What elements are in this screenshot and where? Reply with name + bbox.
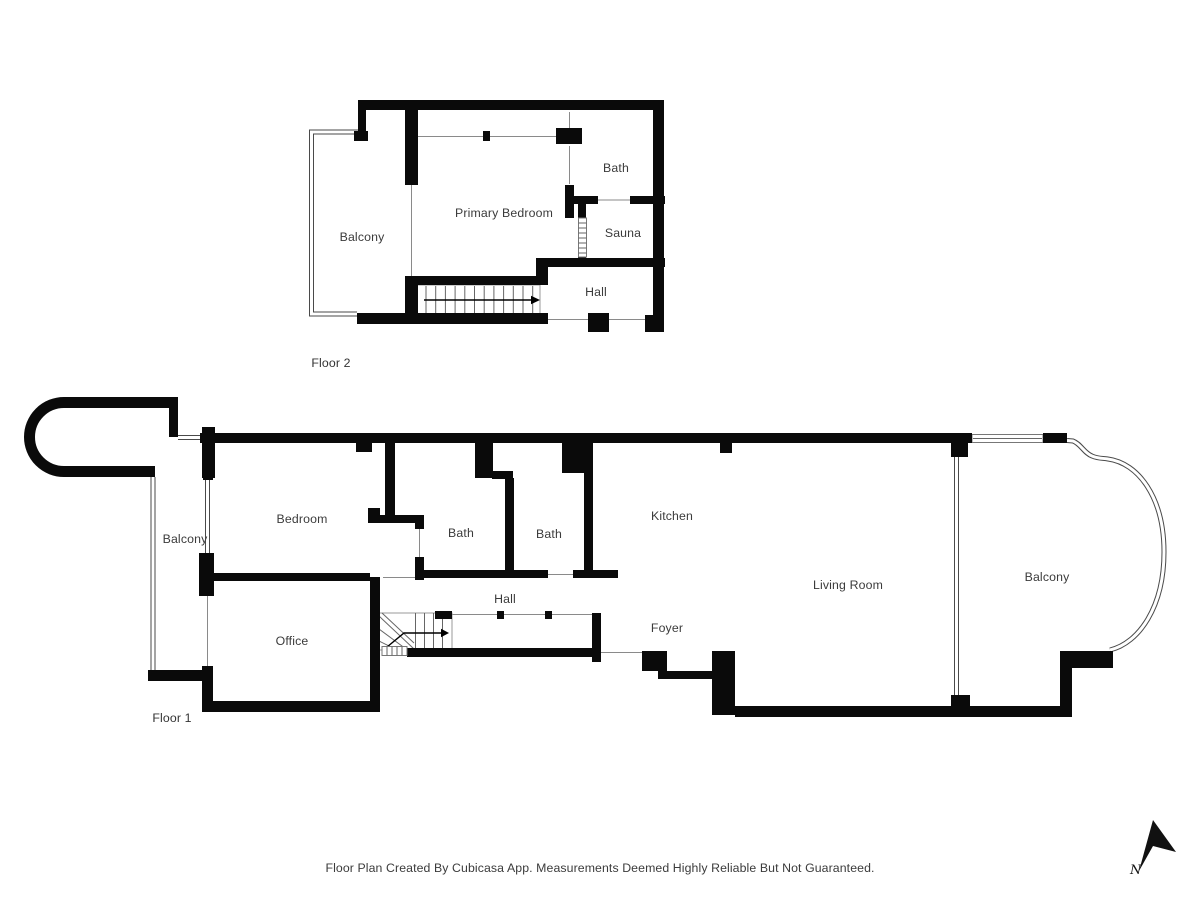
room-label-f1-living-room: Living Room [813,578,883,592]
room-label-f1-hall: Hall [494,592,516,606]
curved-railing-line [1067,441,1164,651]
floor1-title: Floor 1 [152,711,191,725]
floor2-title: Floor 2 [311,356,350,370]
room-label-f2-bath: Bath [603,161,629,175]
floor2-sauna-door [579,218,587,257]
room-label-f1-foyer: Foyer [651,621,683,635]
room-label-f1-balcony-left: Balcony [163,532,208,546]
room-label-f1-bath-1: Bath [448,526,474,540]
room-label-f2-hall: Hall [585,285,607,299]
room-label-f1-balcony-right: Balcony [1025,570,1070,584]
room-label-f1-office: Office [276,634,309,648]
disclaimer-text: Floor Plan Created By Cubicasa App. Meas… [0,861,1200,875]
floor2-balcony-railing [312,132,363,314]
sauna-door-stripes [579,223,587,253]
room-label-f2-primary-bedroom: Primary Bedroom [455,206,553,220]
floor1-plan [30,397,1165,717]
floor-plan-drawing [0,0,1200,900]
floor-plan-page: Balcony Primary Bedroom Bath Sauna Hall … [0,0,1200,900]
room-label-f1-bedroom: Bedroom [277,512,328,526]
floor1-front-window [972,435,1043,443]
room-label-f1-bath-2: Bath [536,527,562,541]
floor1-turret-wall [30,403,173,472]
room-label-f1-kitchen: Kitchen [651,509,693,523]
floor1-right-balcony-railing [1067,441,1164,651]
floor2-stairs [417,285,540,315]
floor1-walls [148,397,1113,717]
railing-line [312,132,363,314]
room-label-f2-balcony: Balcony [340,230,385,244]
floor1-stair-threshold [382,647,407,656]
threshold-icon [382,647,407,656]
room-label-f2-sauna: Sauna [605,226,641,240]
railing-line [312,132,363,314]
